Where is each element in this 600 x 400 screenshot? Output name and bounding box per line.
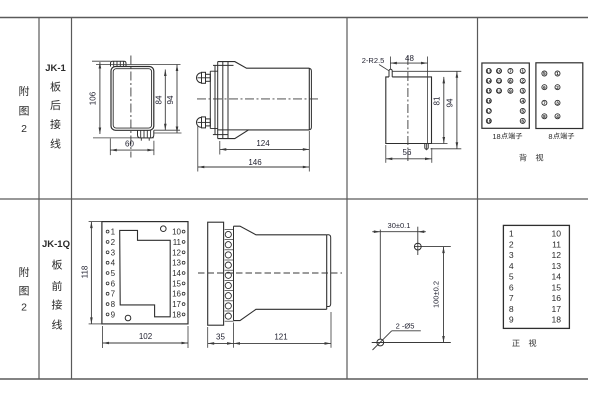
svg-text:1: 1 — [521, 69, 524, 75]
svg-text:17: 17 — [172, 300, 181, 309]
svg-text:13: 13 — [172, 259, 181, 268]
svg-text:15: 15 — [551, 282, 561, 292]
svg-text:16: 16 — [486, 99, 491, 104]
svg-text:12: 12 — [497, 89, 502, 94]
svg-text:17: 17 — [551, 304, 561, 314]
svg-text:124: 124 — [256, 139, 270, 148]
svg-text:5: 5 — [521, 109, 524, 115]
svg-text:6: 6 — [509, 282, 514, 292]
svg-text:84: 84 — [154, 95, 163, 104]
svg-text:5: 5 — [111, 269, 116, 278]
svg-text:4: 4 — [111, 259, 116, 268]
svg-text:2 -Ø5: 2 -Ø5 — [396, 322, 415, 331]
svg-text:100±0.2: 100±0.2 — [432, 281, 441, 308]
svg-text:11: 11 — [552, 239, 561, 249]
svg-text:JK-1Q: JK-1Q — [42, 239, 70, 250]
svg-text:12: 12 — [172, 248, 181, 257]
svg-text:2: 2 — [521, 79, 524, 85]
svg-text:10: 10 — [551, 229, 561, 239]
svg-text:146: 146 — [248, 158, 262, 167]
svg-text:56: 56 — [403, 148, 412, 157]
svg-text:8: 8 — [548, 132, 552, 141]
svg-text:11: 11 — [173, 238, 182, 247]
svg-text:9: 9 — [509, 315, 514, 325]
svg-text:102: 102 — [139, 332, 153, 341]
svg-text:17: 17 — [486, 109, 491, 114]
svg-text:81: 81 — [433, 96, 442, 105]
svg-text:15: 15 — [486, 89, 491, 94]
svg-text:1: 1 — [556, 71, 559, 77]
svg-text:7: 7 — [509, 69, 512, 75]
svg-text:8: 8 — [111, 300, 116, 309]
svg-text:1: 1 — [111, 228, 116, 237]
svg-text:3: 3 — [556, 101, 559, 107]
svg-text:6: 6 — [111, 279, 116, 288]
svg-text:18: 18 — [172, 310, 181, 319]
svg-text:14: 14 — [172, 269, 181, 278]
svg-text:118: 118 — [80, 265, 89, 278]
svg-text:14: 14 — [486, 79, 491, 84]
svg-text:12: 12 — [551, 250, 561, 260]
svg-text:2-R2.5: 2-R2.5 — [362, 56, 385, 65]
svg-text:8: 8 — [543, 114, 546, 120]
svg-text:94: 94 — [446, 98, 455, 107]
svg-text:48: 48 — [405, 54, 414, 63]
svg-text:10: 10 — [497, 69, 502, 74]
svg-text:30±0.1: 30±0.1 — [388, 221, 411, 230]
svg-text:2: 2 — [556, 85, 559, 91]
svg-text:11: 11 — [497, 79, 502, 84]
svg-text:15: 15 — [172, 279, 181, 288]
svg-text:4: 4 — [521, 99, 524, 105]
svg-text:106: 106 — [88, 91, 97, 105]
svg-text:3: 3 — [111, 248, 116, 257]
svg-text:18: 18 — [486, 119, 491, 124]
svg-text:6: 6 — [543, 85, 546, 91]
svg-text:4: 4 — [556, 114, 559, 120]
svg-text:6: 6 — [521, 119, 524, 125]
svg-text:3: 3 — [509, 250, 514, 260]
svg-text:5: 5 — [543, 71, 546, 77]
svg-text:94: 94 — [166, 95, 175, 104]
svg-text:JK-1: JK-1 — [45, 63, 66, 74]
svg-text:8: 8 — [509, 304, 514, 314]
svg-text:35: 35 — [216, 332, 225, 341]
svg-text:14: 14 — [551, 272, 561, 282]
svg-text:9: 9 — [509, 89, 512, 95]
svg-text:16: 16 — [551, 293, 561, 303]
svg-text:7: 7 — [111, 290, 116, 299]
svg-text:13: 13 — [486, 69, 491, 74]
svg-text:3: 3 — [521, 89, 524, 95]
svg-text:4: 4 — [509, 261, 514, 271]
svg-text:1: 1 — [509, 229, 514, 239]
svg-text:5: 5 — [509, 272, 514, 282]
svg-text:2: 2 — [111, 238, 116, 247]
svg-text:121: 121 — [274, 332, 288, 341]
svg-text:9: 9 — [111, 310, 116, 319]
svg-text:60: 60 — [125, 140, 134, 149]
svg-text:2: 2 — [21, 302, 27, 314]
svg-text:10: 10 — [172, 228, 181, 237]
svg-text:13: 13 — [551, 261, 561, 271]
svg-text:8: 8 — [509, 79, 512, 85]
svg-text:18: 18 — [492, 132, 500, 141]
svg-text:2: 2 — [21, 123, 27, 135]
svg-text:7: 7 — [543, 101, 546, 107]
svg-text:2: 2 — [509, 239, 514, 249]
svg-text:18: 18 — [551, 315, 561, 325]
svg-text:7: 7 — [509, 293, 514, 303]
svg-text:16: 16 — [172, 290, 181, 299]
